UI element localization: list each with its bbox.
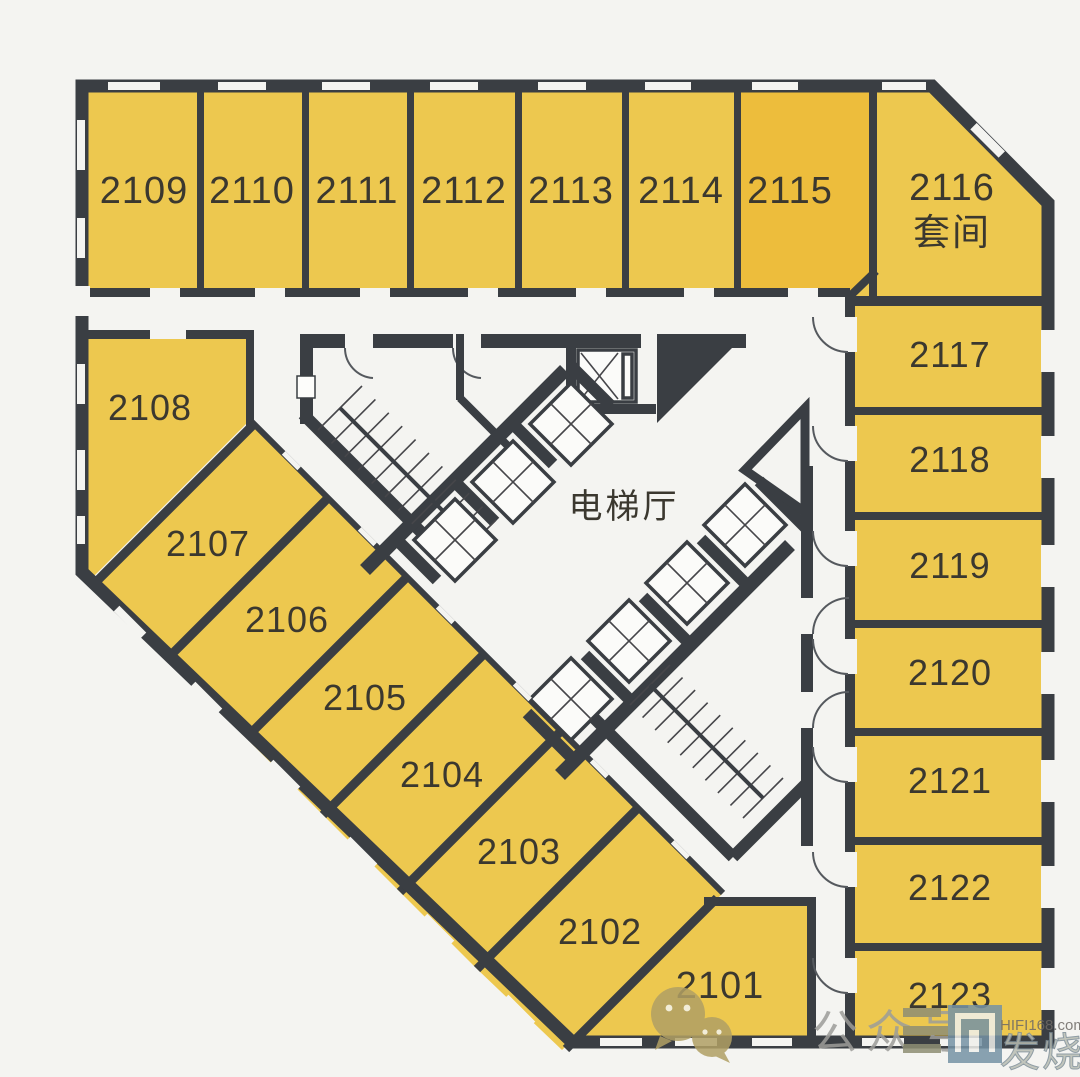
room-2114-label: 2114	[638, 170, 724, 212]
room-2106-label: 2106	[245, 599, 329, 640]
room-2105-label: 2105	[323, 677, 407, 718]
room-2111-label: 2111	[316, 170, 399, 212]
room-2117-label: 2117	[909, 334, 990, 375]
room-2116-label: 2116	[909, 167, 995, 209]
room-2112-label: 2112	[421, 170, 507, 212]
elevator-hall-label: 电梯厅	[569, 488, 680, 526]
room-2109-label: 2109	[100, 170, 189, 212]
door-arc-icon	[345, 348, 373, 378]
room-2122-label: 2122	[908, 867, 992, 908]
room-2118-label: 2118	[909, 439, 990, 480]
room-2107-label: 2107	[166, 523, 250, 564]
site-name-label: 发烧网	[1000, 1031, 1080, 1075]
floor-plan: 2109 2110 2111 2112 2113 2114 2115 2116 …	[0, 0, 1080, 1077]
door-arc-icon	[813, 692, 849, 728]
door-arcs-right-column	[813, 317, 848, 993]
room-2120-label: 2120	[908, 652, 992, 693]
room-2119-label: 2119	[909, 545, 990, 586]
room-2104-label: 2104	[400, 754, 484, 795]
room-2116-suite-label: 套间	[913, 212, 991, 253]
room-2102-label: 2102	[558, 911, 642, 952]
room-areas	[84, 86, 1048, 1050]
floor-plan-svg: 2109 2110 2111 2112 2113 2114 2115 2116 …	[0, 0, 1080, 1077]
fire-hydrant-icon	[297, 376, 315, 398]
room-2108-label: 2108	[108, 387, 192, 428]
room-2115-label: 2115	[747, 170, 833, 212]
door-arc-icon	[813, 598, 849, 634]
staircase-lower	[630, 665, 783, 818]
room-2103-label: 2103	[477, 831, 561, 872]
room-2110-label: 2110	[209, 170, 295, 212]
room-2121-label: 2121	[908, 760, 992, 801]
room-2113-label: 2113	[528, 170, 614, 212]
